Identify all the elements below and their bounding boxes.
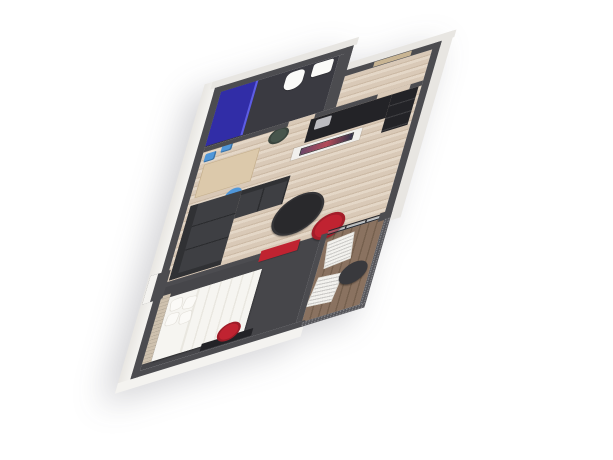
render-shadow [0,0,613,460]
apartment-render-canvas [0,0,613,460]
glass-mullion [345,226,347,229]
glass-mullion [365,220,367,223]
apartment-floorplan [130,16,449,379]
